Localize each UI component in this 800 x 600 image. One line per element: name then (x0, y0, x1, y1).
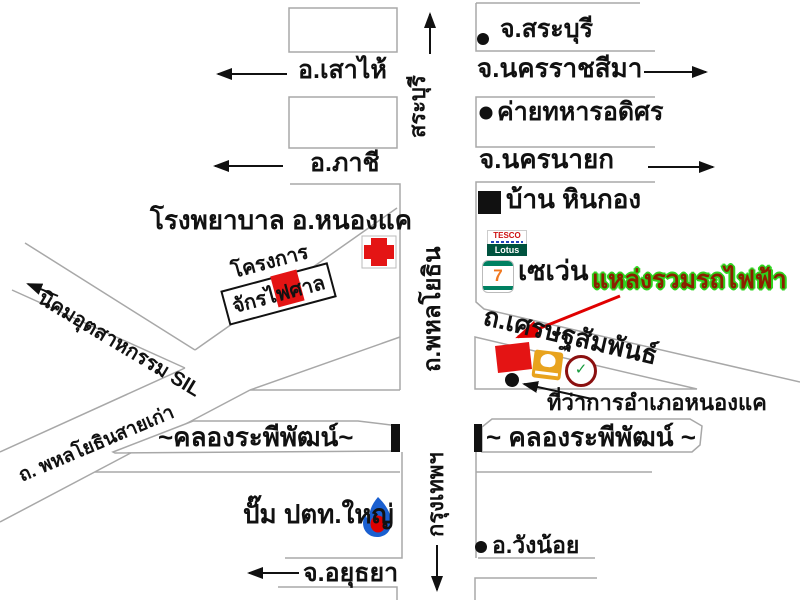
label-hospital: โรงพยาบาล อ.หนองแค (150, 207, 412, 234)
hospital-cross-icon (362, 236, 396, 268)
bank-logo-green-circle: ✓ (565, 355, 597, 387)
canal-right-endbar (474, 424, 482, 452)
bank-logo-yellow (531, 349, 563, 380)
seven-eleven-digit: 7 (483, 266, 513, 286)
road-outlines (0, 3, 800, 600)
label-nakhonratchasima: จ.นครราชสีมา (477, 55, 642, 82)
district-office-dot (505, 373, 519, 387)
saraburi-bullet (477, 33, 489, 45)
map-linework (0, 0, 800, 600)
wangnoi-bullet (475, 541, 487, 553)
tesco-dash-row (491, 241, 523, 243)
label-saohai: อ.เสาไห้ (298, 57, 387, 83)
adisorn-bullet (480, 107, 493, 120)
bank-yellow-textline (535, 371, 558, 377)
canal-left-endbar (391, 424, 400, 452)
label-phahonyothin-vertical: ถ.พหลโยธิน (420, 246, 445, 372)
tesco-logo-top: TESCO (487, 230, 527, 244)
label-district-office: ที่ว่าการอำเภอหนองแค (547, 391, 767, 414)
block-topleft-1 (289, 8, 397, 52)
label-bangkok-vertical: กรุงเทพฯ (424, 452, 447, 537)
label-phachi: อ.ภาชี (310, 150, 379, 176)
label-saraburi-province: จ.สระบุรี (500, 16, 593, 42)
label-hinkong: บ้าน หินกอง (506, 186, 641, 213)
map-canvas: จ.สระบุรี อ.เสาไห้ จ.นครราชสีมา ค่ายทหาร… (0, 0, 800, 600)
block-topleft-2 (289, 97, 397, 148)
tesco-lotus-logo: TESCO Lotus (487, 230, 527, 257)
bank-yellow-emblem (540, 353, 556, 368)
seven-eleven-logo: 7 (482, 260, 514, 293)
label-adisorn-camp: ค่ายทหารอดิศร (497, 99, 663, 125)
label-canal-right: ~ คลองระพีพัฒน์ ~ (486, 424, 696, 451)
label-ptt-station: ปั๊ม ปตท.ใหญ่ (243, 501, 394, 528)
label-saraburi-road-vertical: สระบุรี (406, 75, 429, 138)
ev-landmark-red-box (495, 342, 532, 373)
hinkong-square (478, 191, 501, 214)
label-canal-left: ~คลองระพีพัฒน์~ (158, 424, 353, 451)
wedge-block (250, 337, 400, 390)
label-seven-eleven: เซเว่น (518, 257, 588, 285)
lower-roads-right (475, 452, 652, 600)
label-nakhonnayok: จ.นครนายก (479, 146, 614, 173)
label-ev-highlight: แหล่งรวมรถไฟฟ้า (592, 267, 787, 293)
label-ayutthaya: จ.อยุธยา (303, 560, 398, 586)
label-wangnoi: อ.วังน้อย (492, 533, 579, 557)
tesco-logo-bottom: Lotus (487, 244, 527, 256)
seven-eleven-bottom-stripe (483, 286, 513, 290)
